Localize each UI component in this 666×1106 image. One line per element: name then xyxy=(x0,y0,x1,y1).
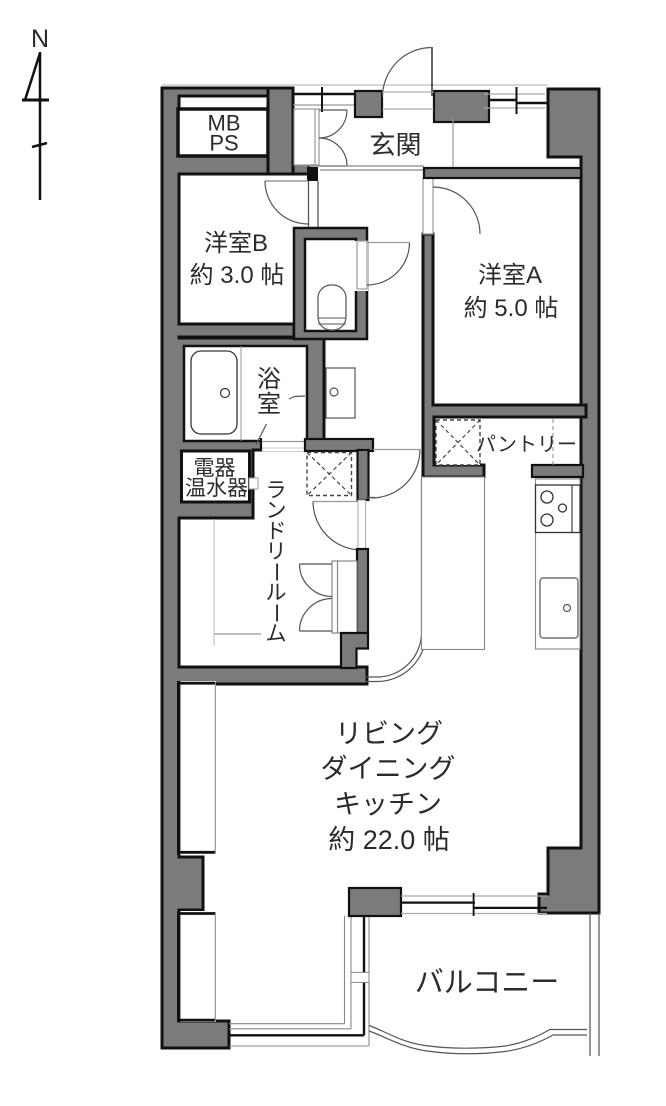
svg-text:洋室B: 洋室B xyxy=(204,230,268,257)
svg-text:ー: ー xyxy=(264,562,287,583)
svg-text:室: 室 xyxy=(257,391,281,418)
svg-text:ー: ー xyxy=(264,603,287,624)
svg-text:浴: 浴 xyxy=(257,366,281,393)
svg-text:温水器: 温水器 xyxy=(185,477,248,500)
svg-text:リビング: リビング xyxy=(335,719,443,749)
svg-text:バルコニー: バルコニー xyxy=(415,967,559,999)
svg-text:リ: リ xyxy=(266,541,287,564)
svg-text:約 22.0 帖: 約 22.0 帖 xyxy=(328,825,450,855)
svg-text:ル: ル xyxy=(266,582,287,605)
svg-text:ダイニング: ダイニング xyxy=(321,754,456,784)
svg-text:N: N xyxy=(31,25,49,53)
svg-text:パントリー: パントリー xyxy=(476,434,577,456)
svg-text:ム: ム xyxy=(266,623,287,646)
svg-text:約 3.0 帖: 約 3.0 帖 xyxy=(190,262,285,289)
svg-text:キッチン: キッチン xyxy=(334,790,442,820)
svg-text:PS: PS xyxy=(209,131,238,156)
svg-text:玄関: 玄関 xyxy=(369,130,421,160)
svg-text:洋室A: 洋室A xyxy=(478,262,542,289)
svg-text:約 5.0 帖: 約 5.0 帖 xyxy=(464,295,559,322)
